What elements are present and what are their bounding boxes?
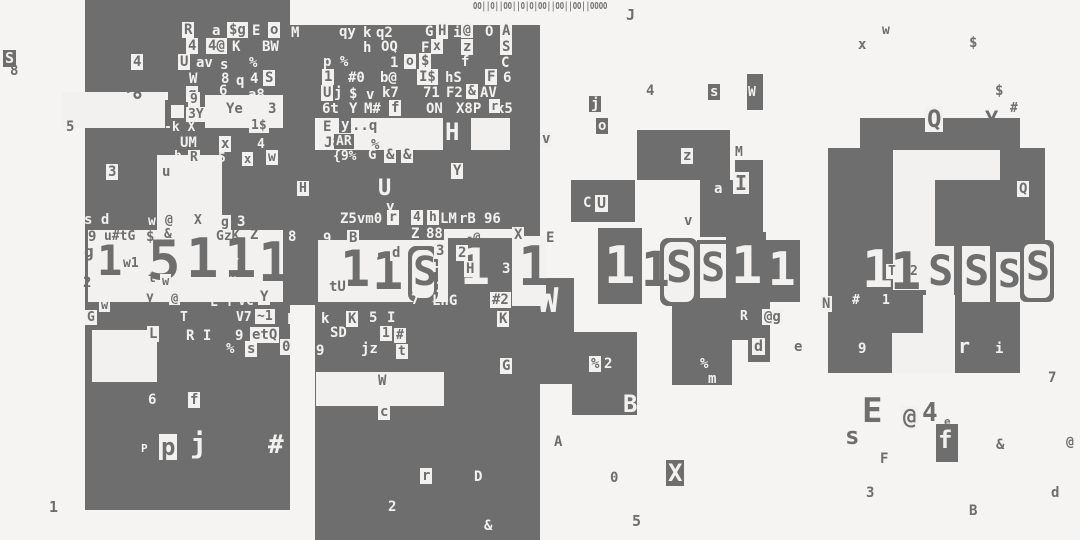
glyph: 4@ <box>206 38 227 54</box>
glyph: 3 <box>866 486 874 500</box>
glyph: 2 <box>604 357 612 371</box>
glyph: t <box>396 344 408 359</box>
glyph: 4 <box>922 400 938 426</box>
glyph: a <box>714 182 722 196</box>
glyph: d <box>752 338 765 355</box>
glyph: OO||O||OO||O|O|OO||OO||OO||OOOO <box>473 2 607 12</box>
glyph: p % <box>323 55 348 69</box>
glyph: 9 <box>858 342 866 356</box>
glyph: UM <box>180 136 197 150</box>
glyph: y <box>339 117 351 133</box>
glyph: & <box>484 519 492 533</box>
block <box>892 333 955 373</box>
glyph: 3 <box>502 262 510 276</box>
glyph: {9% <box>333 150 356 163</box>
glyph: G <box>368 148 376 162</box>
glyph: e <box>794 340 802 354</box>
glyph: I <box>387 311 395 325</box>
glyph: S <box>263 70 275 86</box>
glyph: AV <box>480 86 497 100</box>
glyph: Y <box>985 110 998 132</box>
glyph: Y <box>231 258 239 271</box>
glyph: # <box>852 294 860 307</box>
glyph: o <box>596 118 608 134</box>
glyph: M <box>291 26 299 40</box>
glyph: E <box>323 120 331 134</box>
glyph: 1 <box>97 240 122 282</box>
glyph: U <box>321 85 333 101</box>
glyph: 1 <box>380 326 392 341</box>
glyph: W <box>538 284 558 318</box>
glyph: r <box>387 210 399 225</box>
glyph: 1 <box>258 236 291 290</box>
glyph: vC <box>238 295 254 308</box>
glyph: & <box>340 260 348 274</box>
glyph: 7 <box>411 293 419 307</box>
glyph: 8 <box>10 64 18 78</box>
glyph: ON <box>426 102 443 116</box>
glyph: k <box>287 313 295 327</box>
glyph: C <box>501 56 509 70</box>
glyph: & <box>384 147 396 163</box>
glyph: q2 <box>376 26 393 40</box>
glyph: & <box>466 84 478 99</box>
glyph: G <box>500 358 512 374</box>
glyph: 4 <box>250 72 258 86</box>
glyph: F2 <box>446 86 463 100</box>
glyph: E <box>862 394 882 428</box>
glyph: W <box>189 72 197 86</box>
glyph: P <box>141 443 148 454</box>
glyph: i <box>995 342 1003 356</box>
glyph: s <box>245 341 257 357</box>
glitch-art-canvas: OO||O||OO||O|O|OO||OO||OO||OOOOJYS8Ra$gE… <box>0 0 1080 540</box>
glyph: 1 <box>186 232 219 286</box>
glyph: K <box>497 311 509 327</box>
glyph: % <box>700 357 708 371</box>
glyph: 5 <box>218 152 226 165</box>
glyph: tU <box>327 279 348 295</box>
glyph: 5 <box>632 514 641 529</box>
glyph: #0 <box>348 71 365 85</box>
glyph: S <box>998 255 1021 293</box>
glyph: k <box>321 312 329 326</box>
glyph: X8P <box>456 102 481 116</box>
glyph: d <box>390 245 402 261</box>
glyph: @ <box>461 23 473 38</box>
glyph: u <box>162 165 170 179</box>
glyph: & <box>401 147 413 163</box>
glyph: 3 <box>434 243 446 259</box>
glyph: J <box>360 260 368 274</box>
glyph: j <box>190 430 207 458</box>
glyph: @ <box>901 406 918 430</box>
glyph: M <box>735 146 743 159</box>
glyph: m <box>708 372 716 386</box>
glyph: Q <box>1017 181 1029 197</box>
glyph: 9 <box>235 329 243 343</box>
glyph: LM <box>440 212 457 226</box>
glyph: OQ <box>381 40 398 54</box>
glyph: d <box>1051 486 1059 500</box>
glyph: R <box>740 310 748 323</box>
glyph: s <box>220 58 228 72</box>
glyph: p <box>107 328 115 342</box>
glyph: L T <box>210 296 233 309</box>
glyph: x <box>858 38 866 52</box>
glyph: $ <box>969 36 977 50</box>
glyph: LnG <box>432 294 457 308</box>
glyph: Y <box>128 6 137 21</box>
glyph: H <box>445 120 459 144</box>
glyph: c <box>378 404 390 420</box>
glyph: f <box>938 428 952 452</box>
glyph: E <box>252 24 260 38</box>
glyph: h <box>427 210 439 225</box>
glyph: w <box>99 298 110 312</box>
glyph: k7 <box>382 86 399 100</box>
glyph: j <box>589 96 601 112</box>
glyph: 9 <box>188 92 200 107</box>
glyph: BW <box>262 40 279 54</box>
glyph: G <box>85 310 97 325</box>
glyph: ..q <box>352 119 377 133</box>
glyph: 9 <box>316 344 324 358</box>
glyph: F <box>485 69 497 85</box>
glyph: 0 <box>610 471 618 485</box>
glyph: $ <box>995 84 1003 98</box>
glyph: @ <box>169 291 180 305</box>
glyph: h <box>174 150 182 163</box>
glyph: S <box>1026 247 1050 287</box>
glyph: Y <box>349 102 357 116</box>
glyph: @ <box>1066 436 1074 449</box>
glyph: % <box>126 78 142 104</box>
glyph: @ <box>163 213 175 228</box>
glyph: f <box>389 100 401 116</box>
glyph: p <box>159 434 177 460</box>
glyph: 3 <box>106 164 118 180</box>
glyph: #2 <box>490 292 511 308</box>
glyph: 1 <box>604 240 635 292</box>
glyph: j <box>334 86 342 100</box>
glyph: 71 <box>423 86 440 100</box>
glyph: w <box>148 215 156 228</box>
glyph: r <box>958 336 970 356</box>
glyph: x5 <box>496 102 513 116</box>
glyph: U <box>378 178 391 200</box>
glyph: S <box>500 39 512 55</box>
glyph: # <box>394 328 406 343</box>
glyph: 4 <box>131 54 143 70</box>
glyph: S <box>666 246 693 290</box>
glyph: S <box>964 250 989 292</box>
glyph: O <box>485 25 493 39</box>
glyph: H <box>436 23 448 39</box>
glyph: M# <box>364 102 381 116</box>
glyph: 1 <box>768 246 796 292</box>
glyph: 7 <box>1048 371 1056 385</box>
glyph: 0 <box>280 339 292 355</box>
glyph: B <box>623 392 637 416</box>
block <box>171 105 184 118</box>
glyph: U <box>178 54 190 70</box>
glyph: AR <box>334 134 354 149</box>
glyph: g <box>84 244 94 260</box>
glyph: t <box>148 272 156 285</box>
glyph: x <box>219 136 231 152</box>
glyph: A <box>554 435 562 449</box>
glyph: W <box>748 86 756 99</box>
glyph: a8 <box>248 88 265 102</box>
glyph: B <box>969 504 977 518</box>
glyph: H <box>297 181 309 196</box>
glyph: # <box>268 432 284 458</box>
glyph: 1 <box>890 246 921 298</box>
glyph: w1 <box>121 256 141 271</box>
glyph: L <box>147 326 159 342</box>
glyph: W <box>378 374 386 388</box>
glyph: G <box>425 25 433 39</box>
glyph: C <box>521 110 535 134</box>
glyph: w <box>160 274 171 288</box>
glyph: 6t <box>322 102 339 116</box>
glyph: Z5vm0 <box>340 212 382 226</box>
glyph: % <box>249 56 257 70</box>
glyph: x <box>431 39 443 54</box>
glyph: 4 <box>186 38 198 54</box>
glyph: Y <box>451 163 463 179</box>
glyph: 2 <box>456 245 468 261</box>
glyph: e <box>944 416 951 427</box>
glyph: R <box>188 150 200 165</box>
glyph: # <box>1010 102 1018 115</box>
glyph: 6 <box>503 71 511 85</box>
glyph: X <box>666 460 684 486</box>
glyph: Q <box>925 106 943 132</box>
glyph: v <box>366 88 374 102</box>
glyph: 3 <box>268 102 276 116</box>
glyph: rB <box>459 212 476 226</box>
glyph: % <box>589 356 601 372</box>
glyph: 1 <box>322 69 334 85</box>
glyph: D <box>474 470 482 484</box>
glyph: 2 <box>83 276 91 290</box>
glyph: F <box>880 452 888 466</box>
glyph: 1 <box>731 240 762 292</box>
glyph: s <box>708 84 720 100</box>
glyph: r <box>420 468 432 484</box>
glyph: 6 <box>148 393 156 407</box>
glyph: K <box>232 40 240 54</box>
glyph: I <box>733 172 749 194</box>
glyph: w <box>266 150 278 165</box>
glyph: 4 <box>646 84 654 98</box>
glyph: H <box>433 262 441 275</box>
glyph: $ <box>349 87 357 101</box>
glyph: -k X <box>164 121 195 134</box>
glyph: T <box>180 311 188 324</box>
glyph: q <box>236 74 244 88</box>
glyph: S <box>928 250 953 292</box>
glyph: % <box>226 342 234 356</box>
glyph: 5 <box>66 120 74 134</box>
glyph: H <box>464 261 476 277</box>
glyph: N <box>820 296 832 312</box>
glyph: w <box>882 24 890 37</box>
glyph: f <box>461 55 469 69</box>
glyph: @g <box>762 309 783 325</box>
block <box>672 350 683 382</box>
glyph: V7 <box>236 311 252 324</box>
glyph: S <box>701 248 725 288</box>
glyph: J <box>626 8 635 23</box>
glyph: R <box>182 22 194 38</box>
glyph: 1 <box>49 500 58 515</box>
glyph: s d <box>84 213 109 227</box>
glyph: C <box>583 196 591 210</box>
glyph: b@ <box>380 71 397 85</box>
glyph: 4 <box>411 210 423 225</box>
glyph: av <box>196 56 213 70</box>
glyph: R I <box>186 329 211 343</box>
glyph: s <box>845 424 859 448</box>
glyph: X <box>192 213 204 228</box>
glyph: qy <box>339 25 356 39</box>
glyph: h <box>363 41 371 55</box>
glyph: z <box>461 39 473 55</box>
glyph: 2 <box>388 500 396 514</box>
glyph: 4 <box>257 138 265 151</box>
glyph: a <box>212 24 220 38</box>
glyph: 88 <box>426 227 443 241</box>
glyph: d <box>328 246 336 260</box>
glyph: 1 <box>390 56 398 70</box>
glyph: 5 <box>369 311 377 325</box>
glyph: SD <box>330 326 347 340</box>
glyph: v <box>684 214 692 228</box>
glyph: y <box>146 291 154 304</box>
glyph: o <box>404 54 416 69</box>
block <box>62 92 165 128</box>
glyph: 1 <box>862 244 893 296</box>
glyph: Z <box>411 227 419 241</box>
glyph: f <box>373 246 381 260</box>
glyph: v <box>540 131 552 147</box>
glyph: 6 <box>219 84 227 98</box>
glyph: k <box>363 26 371 40</box>
glyph: z <box>681 148 693 164</box>
glyph: & <box>996 438 1004 452</box>
glyph: ~1 <box>255 309 275 324</box>
glyph: 1$ <box>249 118 269 133</box>
glyph: $g <box>227 22 248 38</box>
glyph: Y <box>258 289 270 305</box>
glyph: Ye <box>226 102 243 116</box>
glyph: K <box>346 311 358 327</box>
glyph: 96 <box>484 212 501 226</box>
glyph: o <box>268 22 280 38</box>
glyph: x <box>242 152 253 166</box>
glyph: hS <box>445 71 462 85</box>
glyph: jz <box>361 342 378 356</box>
glyph: $ <box>419 53 431 69</box>
block <box>700 180 763 237</box>
glyph: f <box>188 392 200 408</box>
glyph: A <box>500 23 512 39</box>
glyph: 9 <box>323 232 331 246</box>
glyph: U <box>595 195 608 212</box>
glyph: u <box>229 274 237 287</box>
glyph: I$ <box>417 69 438 85</box>
